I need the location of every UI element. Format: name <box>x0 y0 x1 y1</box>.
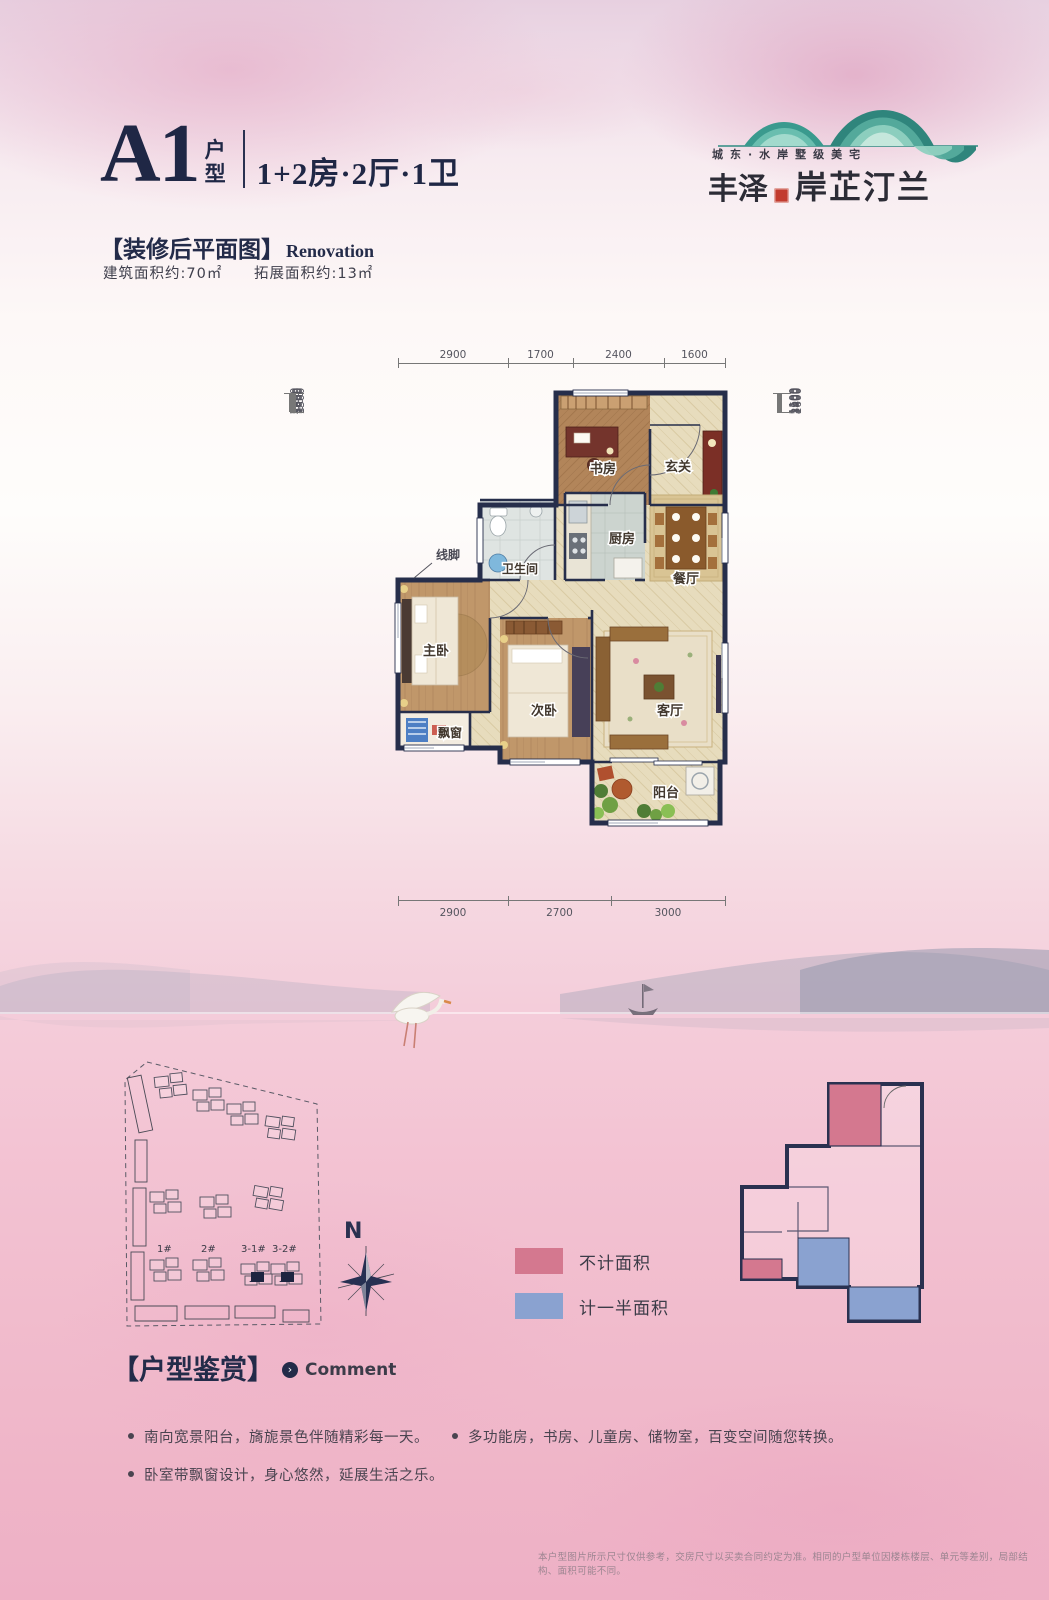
brand-name-primary: 丰泽 <box>708 164 768 208</box>
room-study <box>556 393 650 505</box>
toilet-icon <box>490 508 507 516</box>
room-second-bedroom <box>500 618 592 760</box>
key-plan <box>698 1072 934 1344</box>
keyplan-pink-baywindow <box>742 1259 782 1279</box>
compass-icon: N <box>336 1212 396 1324</box>
area-legend: 不计面积 计一半面积 <box>515 1248 669 1338</box>
legend-label: 计一半面积 <box>579 1294 669 1319</box>
room-label-second: 次卧 <box>531 703 557 719</box>
area-extended: 拓展面积约:13㎡ <box>254 266 373 282</box>
room-entrance <box>703 431 722 499</box>
room-label-living: 客厅 <box>657 703 683 719</box>
building-label-3-2: 3-2# <box>272 1244 297 1255</box>
floorplan-figure: 2900 1700 2400 1600 2600 800 1800 1300 1… <box>285 330 825 955</box>
legend-item-half: 计一半面积 <box>515 1293 669 1319</box>
disclaimer-text: 本户型图片所示尺寸仅供参考，交房尺寸以买卖合同约定为准。相同的户型单位因楼栋楼层… <box>538 1549 1038 1577</box>
fridge-icon <box>614 558 642 578</box>
comment-title-en: Comment <box>305 1360 396 1380</box>
tv-icon <box>716 655 721 713</box>
building-label-3-1: 3-1# <box>241 1244 266 1255</box>
dim-value: 1700 <box>508 349 573 361</box>
room-label-bay-window: 飘窗 <box>438 725 462 740</box>
dim-value: 2400 <box>573 349 664 361</box>
dim-value: 2900 <box>398 349 508 361</box>
room-dining <box>650 495 722 581</box>
dim-value: 2700 <box>508 907 611 919</box>
comment-bullet: 南向宽景阳台，旖旎景色伴随精彩每一天。 <box>128 1426 458 1447</box>
area-built: 建筑面积约:70㎡ <box>103 266 222 282</box>
plan-title-cn: 【装修后平面图】 <box>100 237 284 262</box>
keyplan-blue-balcony <box>849 1287 919 1320</box>
dim-value: 1600 <box>792 381 804 421</box>
molding-annotation: 线脚 <box>436 547 460 562</box>
unit-title-block: A1 户型 1+2房·2厅·1卫 <box>100 112 460 196</box>
unit-code: A1 <box>100 112 199 196</box>
comment-title-cn: 【户型鉴赏】 <box>112 1348 274 1387</box>
room-label-entrance: 玄关 <box>665 459 691 475</box>
brand-tagline: 城东·水岸墅级美宅 <box>712 146 867 162</box>
unit-type-label: 户型 <box>205 138 231 186</box>
floorplan-poster: A1 户型 1+2房·2厅·1卫 城东·水岸墅级美宅 丰泽 岸芷汀兰 【装修后平… <box>0 0 1049 1600</box>
legend-label: 不计面积 <box>579 1249 651 1274</box>
plan-area-info: 建筑面积约:70㎡ 拓展面积约:13㎡ <box>103 262 373 283</box>
legend-swatch-blue <box>515 1293 563 1319</box>
comment-bullets-right: 多功能房，书房、儿童房、储物室，百变空间随您转换。 <box>452 1426 892 1464</box>
bed-headboard <box>402 599 412 683</box>
building-label-2: 2# <box>201 1244 216 1255</box>
dimension-chain-left: 2600 800 1800 1300 1000 900 1300 <box>289 393 296 412</box>
molding-leader-line <box>414 563 432 578</box>
legend-item-excluded: 不计面积 <box>515 1248 669 1274</box>
brand-logo: 城东·水岸墅级美宅 丰泽 岸芷汀兰 <box>688 94 998 214</box>
dim-value: 2900 <box>398 907 508 919</box>
floorplan-drawing: 书房 玄关 卫生间 厨房 餐厅 主卧 次卧 客厅 飘窗 阳台 线脚 <box>384 385 740 833</box>
bedside-rug <box>572 647 590 737</box>
room-label-master: 主卧 <box>423 643 449 659</box>
dim-value: 3000 <box>611 907 725 919</box>
washing-machine-icon <box>686 767 714 795</box>
plan-section-title: 【装修后平面图】Renovation <box>100 230 374 264</box>
room-label-study: 书房 <box>590 461 616 477</box>
room-label-bathroom: 卫生间 <box>502 561 538 576</box>
brand-seal-icon <box>774 188 789 203</box>
room-label-kitchen: 厨房 <box>609 531 635 547</box>
brand-name-secondary: 岸芷汀兰 <box>795 162 931 208</box>
keyplan-blue-bedroom <box>798 1238 849 1286</box>
dim-value: 1300 <box>295 381 307 421</box>
room-label-balcony: 阳台 <box>653 785 679 801</box>
boat-silhouette <box>628 984 658 1015</box>
building-labels: 1# 2# 3-1# 3-2# <box>157 1244 297 1255</box>
comment-arrow-icon: › <box>282 1362 298 1378</box>
legend-swatch-pink <box>515 1248 563 1274</box>
sofa-icon <box>596 637 610 721</box>
crane-bird <box>378 978 458 1068</box>
balcony-table-icon <box>612 779 632 799</box>
title-divider <box>243 130 245 188</box>
dimension-chain-bottom: 2900 2700 3000 <box>398 900 725 924</box>
comment-bullet: 多功能房，书房、儿童房、储物室，百变空间随您转换。 <box>452 1426 892 1447</box>
stove-icon <box>569 533 587 559</box>
dimension-chain-right: 1100 1500 3900 3400 1600 <box>777 393 782 412</box>
comment-section-title: 【户型鉴赏】 › Comment <box>112 1348 396 1387</box>
dim-value: 1600 <box>664 349 725 361</box>
compass-n-label: N <box>344 1219 362 1244</box>
building-label-1: 1# <box>157 1244 172 1255</box>
room-living <box>596 627 721 749</box>
plan-title-en: Renovation <box>286 241 374 261</box>
keyplan-pink-study <box>829 1084 881 1146</box>
room-label-dining: 餐厅 <box>672 571 699 587</box>
comment-bullet: 卧室带飘窗设计，身心悠然，延展生活之乐。 <box>128 1464 458 1485</box>
unit-spec: 1+2房·2厅·1卫 <box>257 148 460 193</box>
dimension-chain-top: 2900 1700 2400 1600 <box>398 344 725 364</box>
brand-name: 丰泽 岸芷汀兰 <box>708 162 931 208</box>
comment-bullets-left: 南向宽景阳台，旖旎景色伴随精彩每一天。 卧室带飘窗设计，身心悠然，延展生活之乐。 <box>128 1426 458 1502</box>
